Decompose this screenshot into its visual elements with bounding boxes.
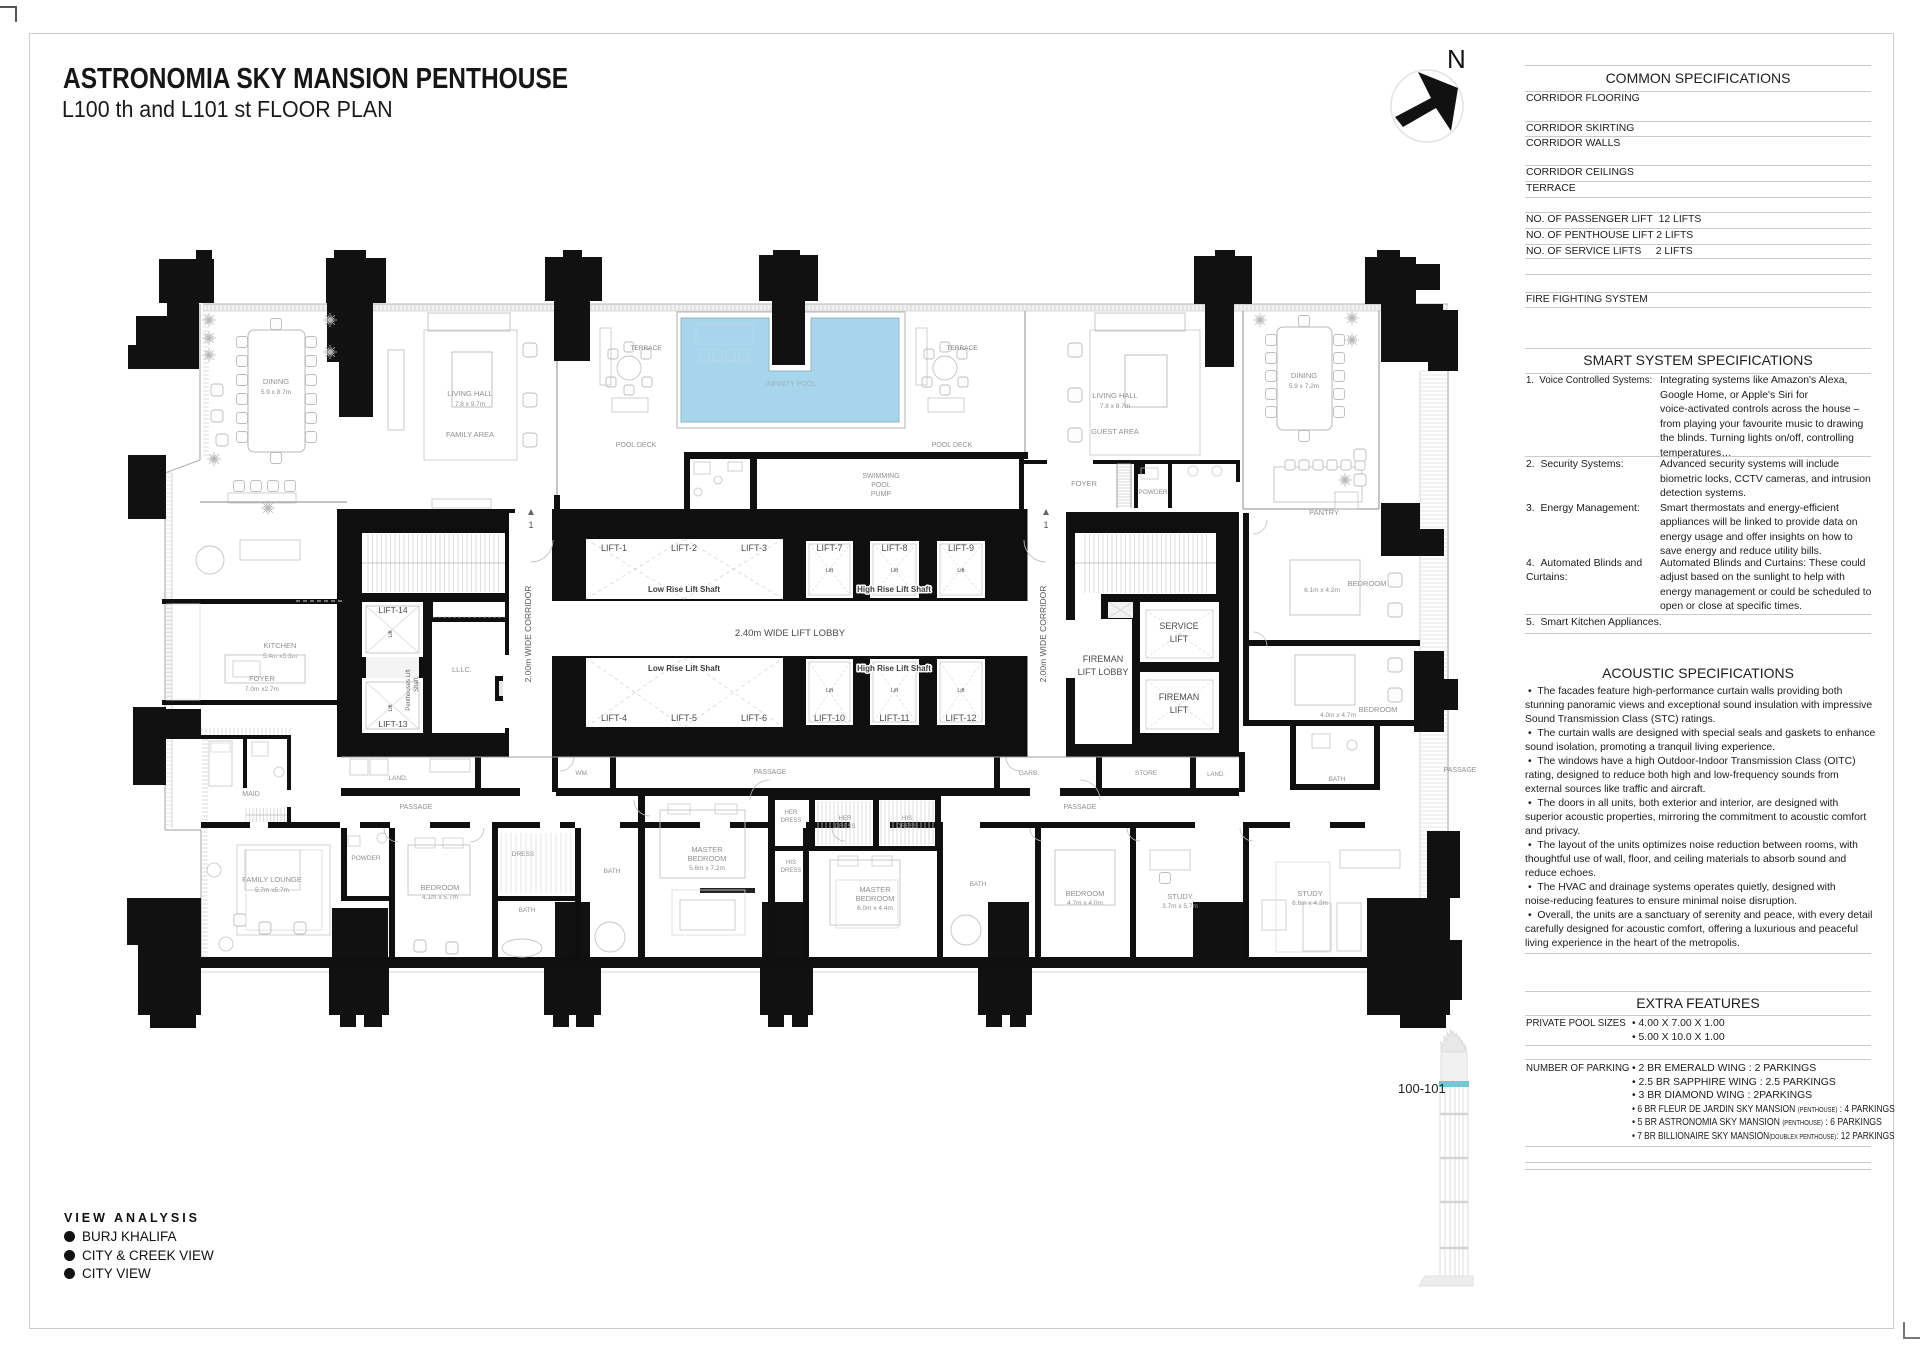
svg-text:BEDROOM: BEDROOM (1348, 579, 1387, 588)
svg-text:INFINITY POOL: INFINITY POOL (766, 381, 817, 388)
svg-text:LIFT-6: LIFT-6 (741, 713, 767, 723)
svg-text:MASTER: MASTER (859, 885, 891, 894)
svg-text:DINING: DINING (1291, 371, 1317, 380)
svg-text:Lift: Lift (891, 568, 899, 574)
svg-text:BEDROOM: BEDROOM (1066, 889, 1105, 898)
svg-text:Lift: Lift (826, 568, 834, 574)
svg-text:LIFT-2: LIFT-2 (671, 543, 697, 553)
svg-text:POOL DECK: POOL DECK (932, 442, 973, 449)
svg-text:7.8 x 8.7m: 7.8 x 8.7m (1100, 403, 1130, 410)
svg-text:PASSAGE: PASSAGE (754, 769, 787, 776)
svg-text:7.0m x2.7m: 7.0m x2.7m (245, 686, 279, 693)
svg-text:STUDY: STUDY (1297, 889, 1322, 898)
svg-text:POWDER: POWDER (351, 855, 381, 862)
svg-text:Lift: Lift (891, 688, 899, 694)
svg-text:Lift: Lift (957, 568, 965, 574)
svg-text:LIFT-8: LIFT-8 (881, 543, 907, 553)
svg-text:FOYER: FOYER (249, 674, 275, 683)
svg-text:PASSAGE: PASSAGE (1444, 767, 1477, 774)
svg-text:5.7m x5.7m: 5.7m x5.7m (255, 887, 289, 894)
svg-text:5.6m x 7.2m: 5.6m x 7.2m (689, 865, 725, 872)
svg-text:LIFT: LIFT (1170, 634, 1189, 644)
svg-text:LIFT-9: LIFT-9 (948, 543, 974, 553)
svg-text:5.4m x5.3m: 5.4m x5.3m (263, 653, 297, 660)
svg-text:BEDROOM: BEDROOM (421, 883, 460, 892)
svg-text:PANTRY: PANTRY (1309, 508, 1339, 517)
svg-text:Shaft,: Shaft, (414, 676, 420, 692)
svg-text:4.7m x 4.0m: 4.7m x 4.0m (1067, 900, 1103, 907)
svg-text:HIS: HIS (902, 816, 912, 822)
svg-text:MASTER: MASTER (691, 845, 723, 854)
svg-text:GARB.: GARB. (1019, 770, 1039, 777)
svg-text:LIFT-10: LIFT-10 (814, 713, 845, 723)
svg-text:High Rise Lift Shaft: High Rise Lift Shaft (857, 664, 931, 673)
svg-text:LIFT-11: LIFT-11 (879, 713, 909, 723)
svg-text:2.00m WIDE CORRIDOR: 2.00m WIDE CORRIDOR (523, 586, 533, 683)
svg-text:Low Rise Lift Shaft: Low Rise Lift Shaft (648, 585, 720, 594)
svg-text:2.40m WIDE LIFT LOBBY: 2.40m WIDE LIFT LOBBY (735, 628, 846, 639)
svg-text:LIFT-12: LIFT-12 (945, 713, 976, 723)
svg-text:DRESS: DRESS (781, 868, 802, 874)
svg-text:5.9 x 8.7m: 5.9 x 8.7m (261, 389, 291, 396)
svg-text:FAMILY AREA: FAMILY AREA (446, 430, 494, 439)
svg-text:PASSAGE: PASSAGE (1064, 804, 1097, 811)
svg-text:HIS: HIS (786, 860, 796, 866)
svg-text:LIFT-5: LIFT-5 (671, 713, 697, 723)
svg-text:LIFT-3: LIFT-3 (741, 543, 767, 553)
svg-text:LIFT-14: LIFT-14 (378, 605, 408, 615)
svg-text:FIREMAN: FIREMAN (1083, 654, 1124, 664)
svg-text:BATH: BATH (519, 907, 536, 914)
svg-text:7.8 x 9.7m: 7.8 x 9.7m (455, 401, 485, 408)
svg-text:BATH: BATH (1329, 776, 1346, 783)
svg-text:LAND.: LAND. (388, 775, 407, 782)
svg-text:POOL: POOL (871, 482, 891, 489)
svg-text:POOL DECK: POOL DECK (616, 442, 657, 449)
svg-text:POWDER: POWDER (1138, 489, 1168, 496)
svg-text:FIREMAN: FIREMAN (1159, 692, 1200, 702)
svg-text:BATH: BATH (604, 868, 621, 875)
svg-text:PUMP: PUMP (871, 491, 892, 498)
svg-text:HER: HER (839, 816, 852, 822)
svg-text:DRESS: DRESS (512, 851, 535, 858)
svg-text:4.0m x 4.7m: 4.0m x 4.7m (1320, 712, 1356, 719)
svg-text:MAID: MAID (242, 791, 260, 798)
svg-text:GUEST AREA: GUEST AREA (1091, 427, 1139, 436)
svg-text:LIVING HALL: LIVING HALL (1092, 391, 1137, 400)
svg-text:6.6m x 4.3m: 6.6m x 4.3m (1292, 900, 1328, 907)
svg-text:High Rise Lift Shaft: High Rise Lift Shaft (857, 585, 931, 594)
svg-text:Lift: Lift (388, 630, 394, 638)
svg-text:LIFT-1: LIFT-1 (601, 543, 627, 553)
svg-text:5.9 x 7.2m: 5.9 x 7.2m (1289, 383, 1319, 390)
svg-text:LIFT LOBBY: LIFT LOBBY (1078, 667, 1129, 677)
svg-text:LAND.: LAND. (1207, 772, 1225, 778)
svg-text:Lift: Lift (957, 688, 965, 694)
svg-text:BEDROOM: BEDROOM (688, 854, 727, 863)
svg-text:2.00m WIDE CORRIDOR: 2.00m WIDE CORRIDOR (1038, 586, 1048, 683)
svg-text:LLLC.: LLLC. (452, 665, 472, 674)
svg-text:1: 1 (528, 520, 533, 530)
svg-text:SWIMMING: SWIMMING (862, 473, 899, 480)
svg-text:KITCHEN: KITCHEN (264, 641, 297, 650)
svg-text:3.7m x 5.7m: 3.7m x 5.7m (1162, 903, 1198, 910)
svg-text:DRESS: DRESS (835, 824, 856, 830)
svg-text:FAMILY LOUNGE: FAMILY LOUNGE (242, 875, 302, 884)
svg-text:WM.: WM. (575, 770, 589, 777)
svg-text:LIFT-4: LIFT-4 (601, 713, 627, 723)
svg-text:SERVICE: SERVICE (1159, 621, 1198, 631)
svg-text:Penthouses Lift: Penthouses Lift (406, 669, 412, 711)
svg-text:PASSAGE: PASSAGE (400, 804, 433, 811)
svg-text:STUDY: STUDY (1167, 892, 1192, 901)
svg-text:1: 1 (1043, 520, 1048, 530)
svg-text:BATH: BATH (970, 881, 987, 888)
svg-text:DRESS: DRESS (781, 818, 802, 824)
svg-text:LIFT-13: LIFT-13 (378, 719, 408, 729)
svg-text:6.1m x 4.2m: 6.1m x 4.2m (1304, 587, 1340, 594)
svg-text:LIFT-7: LIFT-7 (816, 543, 842, 553)
svg-text:LIVING HALL: LIVING HALL (447, 389, 492, 398)
svg-text:FOYER: FOYER (1071, 479, 1097, 488)
svg-text:HER: HER (785, 810, 798, 816)
svg-text:TERRACE: TERRACE (630, 345, 662, 352)
svg-text:6.0m x 4.4m: 6.0m x 4.4m (857, 905, 893, 912)
svg-text:BEDROOM: BEDROOM (1359, 705, 1398, 714)
svg-text:DINING: DINING (263, 377, 289, 386)
svg-text:DRESS: DRESS (897, 824, 918, 830)
svg-text:BEDROOM: BEDROOM (856, 894, 895, 903)
svg-text:STORE: STORE (1135, 770, 1158, 777)
svg-text:Lift: Lift (388, 704, 394, 712)
svg-text:Low Rise Lift Shaft: Low Rise Lift Shaft (648, 664, 720, 673)
svg-text:LIFT: LIFT (1170, 705, 1189, 715)
svg-text:Lift: Lift (826, 688, 834, 694)
svg-text:TERRACE: TERRACE (946, 345, 978, 352)
